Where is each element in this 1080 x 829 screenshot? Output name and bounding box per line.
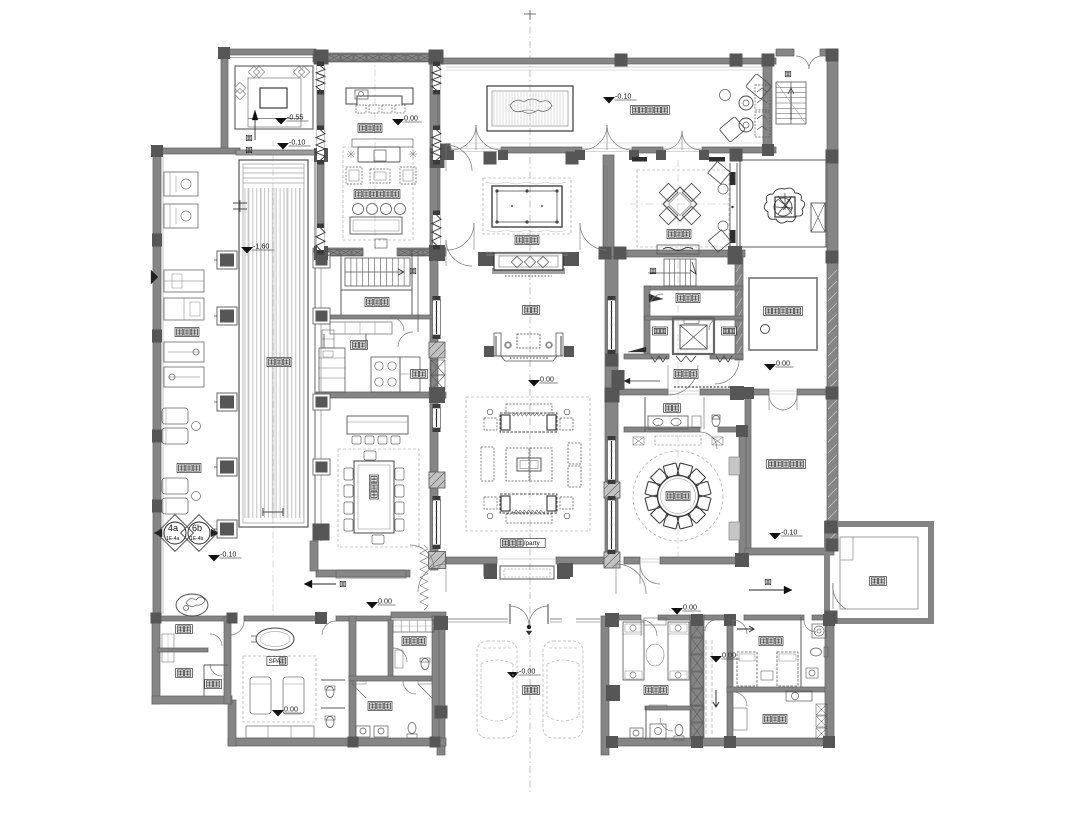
svg-text:-0.00: -0.00 — [519, 667, 535, 676]
svg-text:0.00: 0.00 — [540, 375, 554, 384]
svg-text:0.00: 0.00 — [683, 603, 697, 612]
svg-text:0.00: 0.00 — [284, 705, 298, 714]
svg-text:-0.55: -0.55 — [287, 113, 303, 122]
svg-text:/party: /party — [524, 540, 541, 547]
svg-text:4a: 4a — [168, 523, 178, 533]
svg-text:-0.10: -0.10 — [615, 92, 631, 101]
svg-text:0.00: 0.00 — [776, 359, 790, 368]
svg-text:-0.10: -0.10 — [220, 550, 236, 559]
svg-text:-0.10: -0.10 — [781, 528, 797, 537]
svg-text:1E-4b: 1E-4b — [190, 536, 204, 542]
svg-text:-1.60: -1.60 — [253, 242, 269, 251]
svg-text:0.00: 0.00 — [404, 114, 418, 123]
svg-text:0.00: 0.00 — [722, 651, 736, 660]
svg-text:1E-4a: 1E-4a — [166, 536, 180, 542]
svg-text:0.00: 0.00 — [378, 597, 392, 606]
svg-text:6b: 6b — [192, 523, 202, 533]
svg-text:-0.10: -0.10 — [289, 138, 305, 147]
